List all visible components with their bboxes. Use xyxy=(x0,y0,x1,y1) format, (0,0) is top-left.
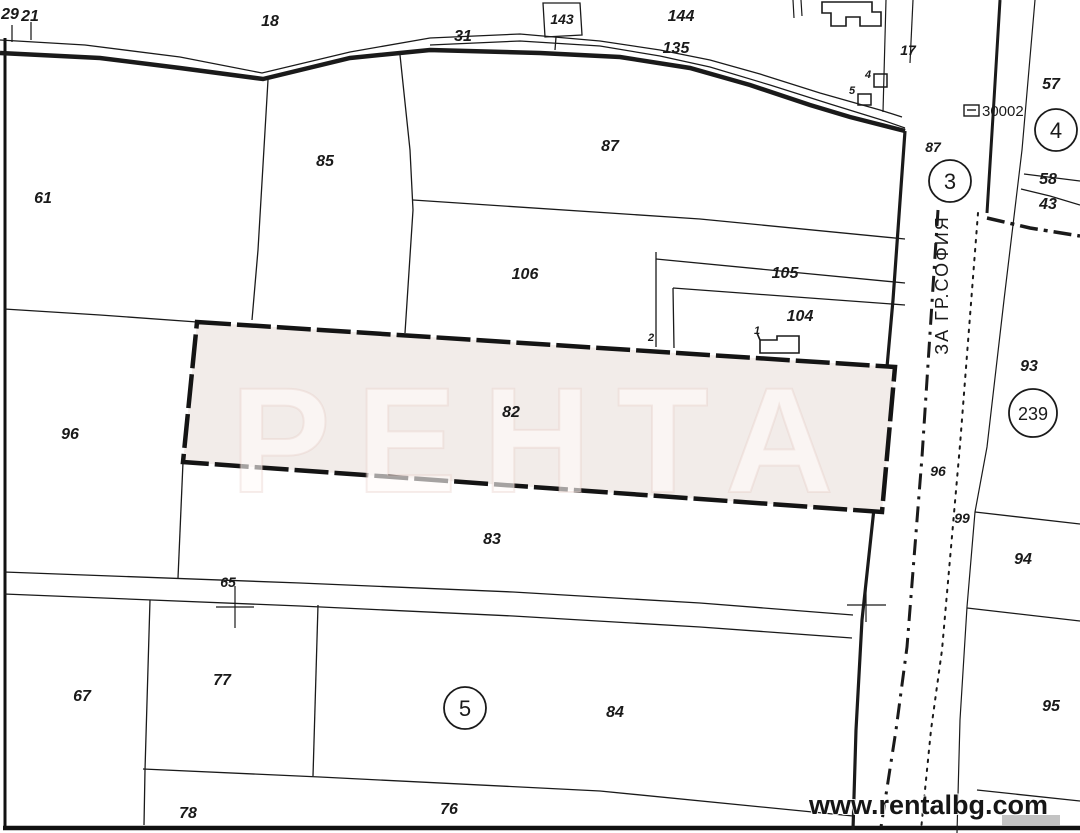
parcel-label-85: 85 xyxy=(316,153,335,170)
parcel-label-106: 106 xyxy=(512,266,539,283)
parcel-label-43: 43 xyxy=(1038,196,1057,213)
parcel-label-84: 84 xyxy=(606,704,624,721)
parcel-label-18: 18 xyxy=(261,13,279,30)
parcel-label-58: 58 xyxy=(1039,171,1057,188)
parcel-label-77: 77 xyxy=(213,672,232,689)
parcel-label-76: 76 xyxy=(440,801,458,818)
boundary-96-83 xyxy=(178,462,183,578)
road-name-label: ЗА ГР.СОФИЯ xyxy=(932,215,952,354)
boundary-ticks xyxy=(793,0,802,18)
parcel-label-31: 31 xyxy=(454,28,472,45)
parcel-label-29: 29 xyxy=(0,6,19,23)
map-canvas: РЕНТА 3 4 5 239 30002 ЗА ГР.СОФИЯ 29 21 … xyxy=(0,0,1080,833)
website-watermark: www.rentalbg.com xyxy=(808,790,1048,820)
parcel-label-83: 83 xyxy=(483,531,501,548)
parcel-label-96-road: 96 xyxy=(930,463,946,479)
boundary-85-87 xyxy=(400,55,413,333)
circled-number-4: 4 xyxy=(1050,118,1062,143)
parcel-label-95: 95 xyxy=(1042,698,1061,715)
building-5-outline xyxy=(858,94,871,105)
parcel-label-87: 87 xyxy=(601,138,620,155)
watermark-text: РЕНТА xyxy=(231,356,860,524)
parcel-105-left-bracket xyxy=(656,252,674,348)
parcel-94-bottom-line xyxy=(967,608,1080,621)
top-boundary-thick xyxy=(0,50,905,131)
building-label-4: 4 xyxy=(864,69,871,81)
parcel-label-57: 57 xyxy=(1042,76,1061,93)
parcel-label-144: 144 xyxy=(668,8,695,25)
parcel-label-96: 96 xyxy=(61,426,79,443)
survey-cross xyxy=(847,588,886,622)
parcel-105-bottom-line xyxy=(673,288,905,305)
parcel-label-94: 94 xyxy=(1014,551,1032,568)
lower-road-top-edge xyxy=(4,572,853,615)
building-label-1: 1 xyxy=(754,325,760,337)
parcel-label-143: 143 xyxy=(550,11,574,27)
parcel-label-87-road: 87 xyxy=(925,139,942,155)
lower-road-bottom-edge xyxy=(4,594,852,638)
circled-number-3: 3 xyxy=(944,169,956,194)
parcel-96-top-line xyxy=(4,309,197,322)
survey-cross xyxy=(216,586,254,628)
road-centerline-dashdot xyxy=(881,210,938,827)
boundary-67-77 xyxy=(144,600,150,825)
top-road-edge-upper xyxy=(0,34,902,117)
building-4-outline xyxy=(874,74,887,87)
parcel-label-67: 67 xyxy=(73,688,92,705)
boundary-77-84 xyxy=(313,605,318,776)
corner-ticks xyxy=(12,22,31,42)
parcel-76-top-line xyxy=(143,769,853,816)
boundary-61-85 xyxy=(252,80,268,320)
parcel-label-17: 17 xyxy=(900,42,917,58)
parcel-label-65: 65 xyxy=(220,574,236,590)
small-road-edge-left xyxy=(883,0,886,112)
parcel-label-93: 93 xyxy=(1020,358,1038,375)
parcel-94-top-line xyxy=(975,512,1080,524)
code-label: 30002 xyxy=(982,103,1024,120)
circled-number-239: 239 xyxy=(1018,404,1048,424)
building-label-5: 5 xyxy=(849,85,856,97)
building-outline xyxy=(822,2,881,26)
parcel-label-105: 105 xyxy=(772,265,800,282)
building-1-outline xyxy=(757,333,799,353)
cadastral-map: РЕНТА 3 4 5 239 30002 ЗА ГР.СОФИЯ 29 21 … xyxy=(0,0,1080,833)
parcel-label-104: 104 xyxy=(787,308,814,325)
boundary-label-2: 2 xyxy=(647,332,654,344)
parcel-106-top-line xyxy=(413,200,905,239)
parcel-label-21: 21 xyxy=(20,8,39,25)
parcel-label-135: 135 xyxy=(663,40,691,57)
circled-number-5: 5 xyxy=(459,696,471,721)
parcel-label-82: 82 xyxy=(502,404,520,421)
parcel-label-78: 78 xyxy=(179,805,197,822)
parcel-label-99: 99 xyxy=(954,510,970,526)
parcel-label-61: 61 xyxy=(34,190,52,207)
boundary-dashdot-east xyxy=(987,218,1080,236)
